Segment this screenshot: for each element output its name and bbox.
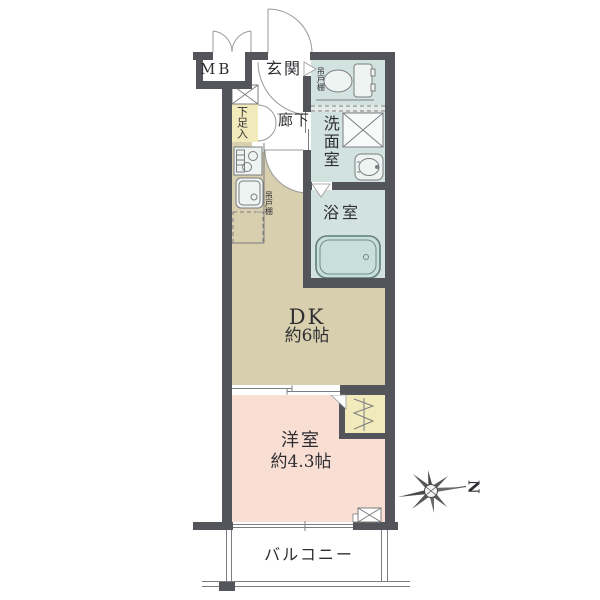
balcony-window [233, 521, 353, 531]
washroom-label: 洗面室 [321, 115, 338, 169]
stove-icon [234, 147, 262, 175]
washing-machine-space [343, 113, 383, 147]
western-room-size-label: 約4.3帖 [248, 454, 354, 472]
hanging-cupboard-label-kitchen: 吊戸棚 [264, 191, 272, 215]
floor-plan-drawing [0, 0, 600, 600]
balcony-wall-stub [219, 582, 235, 591]
hallway-label: 廊下 [278, 113, 310, 129]
bathroom-label: 浴室 [323, 205, 361, 222]
entrance-door-arc [268, 9, 312, 53]
hanging-cupboard-label-toilet: 吊戸棚 [316, 67, 324, 91]
north-letter: N [465, 480, 481, 494]
floor-plan: MB 玄関 廊下 下足入 吊戸棚 吊戸棚 洗面室 浴室 DK 約6帖 洋室 約4… [0, 0, 600, 600]
meter-box-label: MB [200, 62, 246, 78]
compass-rose [398, 470, 466, 513]
washbasin-icon [355, 154, 383, 180]
room-sliding-door [232, 385, 340, 395]
balcony-label: バルコニー [257, 547, 361, 564]
closet-floor [345, 395, 385, 433]
kitchen-sink-icon [236, 178, 263, 208]
dk-size-label: 約6帖 [255, 328, 359, 346]
western-room-label: 洋室 [248, 432, 354, 451]
meter-box-door-arcs [213, 31, 251, 52]
entrance-label: 玄関 [266, 61, 302, 78]
dk-label: DK [255, 306, 359, 328]
partition-hatch [311, 105, 385, 112]
bathtub-icon [316, 236, 380, 278]
shoe-cabinet-label: 下足入 [236, 106, 248, 139]
